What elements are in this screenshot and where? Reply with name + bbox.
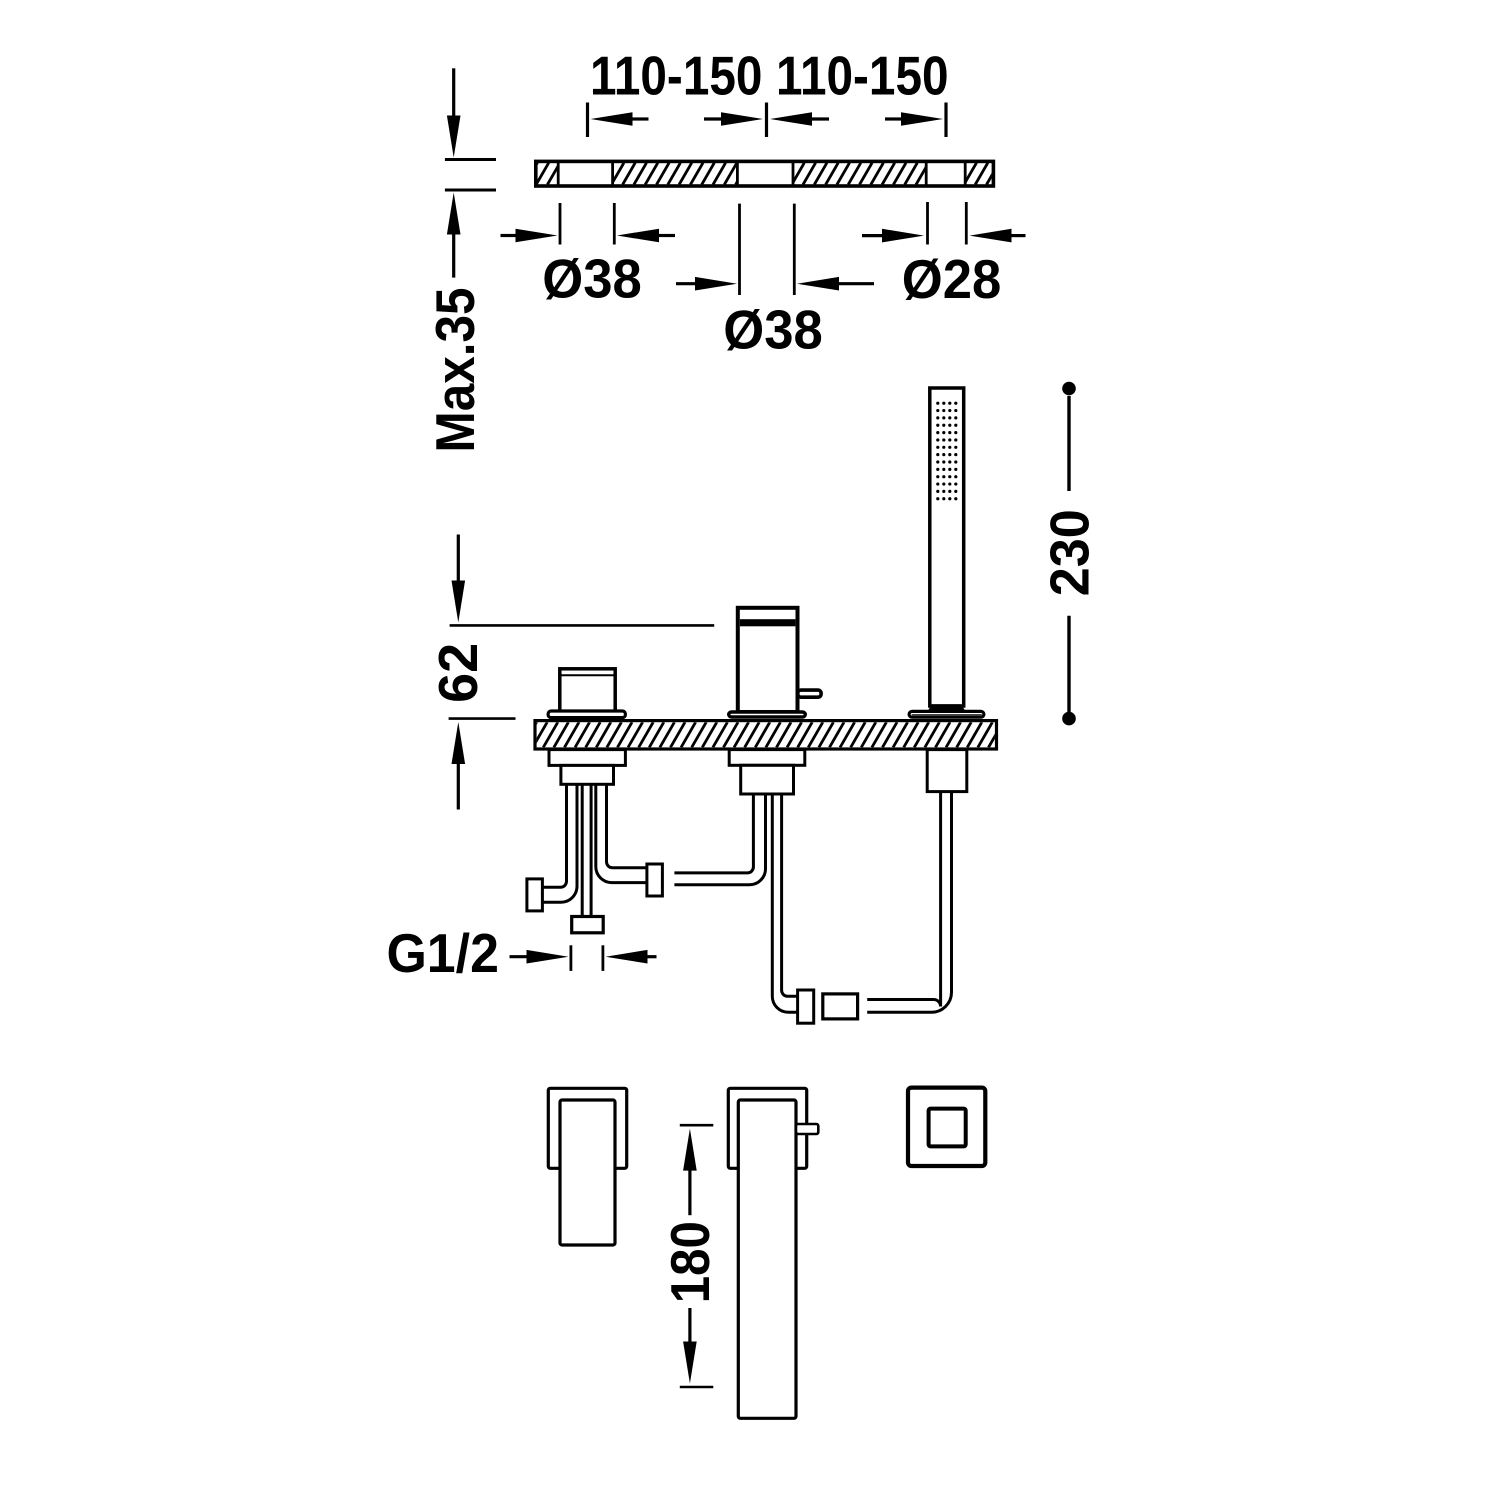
svg-text:Ø38: Ø38	[723, 299, 823, 361]
svg-text:230: 230	[1039, 509, 1101, 596]
svg-text:62: 62	[427, 643, 489, 703]
svg-text:110-150: 110-150	[590, 45, 763, 107]
svg-text:Max.35: Max.35	[424, 288, 486, 453]
svg-text:Ø38: Ø38	[542, 248, 642, 310]
svg-text:Ø28: Ø28	[902, 248, 1002, 310]
svg-text:110-150: 110-150	[776, 45, 949, 107]
svg-text:G1/2: G1/2	[386, 922, 499, 984]
svg-text:180: 180	[659, 1221, 721, 1303]
